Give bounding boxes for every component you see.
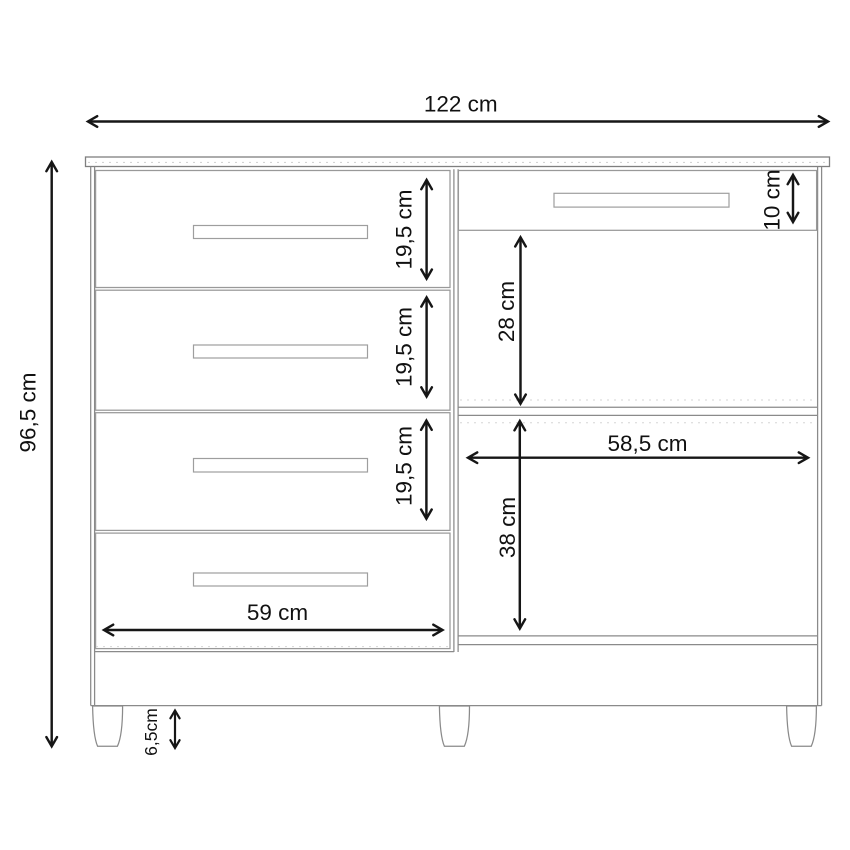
svg-text:38 cm: 38 cm (495, 497, 520, 558)
svg-text:96,5 cm: 96,5 cm (16, 372, 41, 452)
svg-text:58,5 cm: 58,5 cm (607, 431, 687, 456)
svg-text:19,5 cm: 19,5 cm (391, 189, 416, 269)
svg-text:28 cm: 28 cm (494, 281, 519, 342)
svg-text:19,5 cm: 19,5 cm (391, 426, 416, 506)
svg-text:6,5cm: 6,5cm (141, 708, 161, 756)
svg-text:59 cm: 59 cm (247, 600, 308, 625)
svg-text:19,5 cm: 19,5 cm (391, 307, 416, 387)
svg-text:10 cm: 10 cm (760, 169, 785, 230)
svg-text:122 cm: 122 cm (424, 92, 498, 117)
